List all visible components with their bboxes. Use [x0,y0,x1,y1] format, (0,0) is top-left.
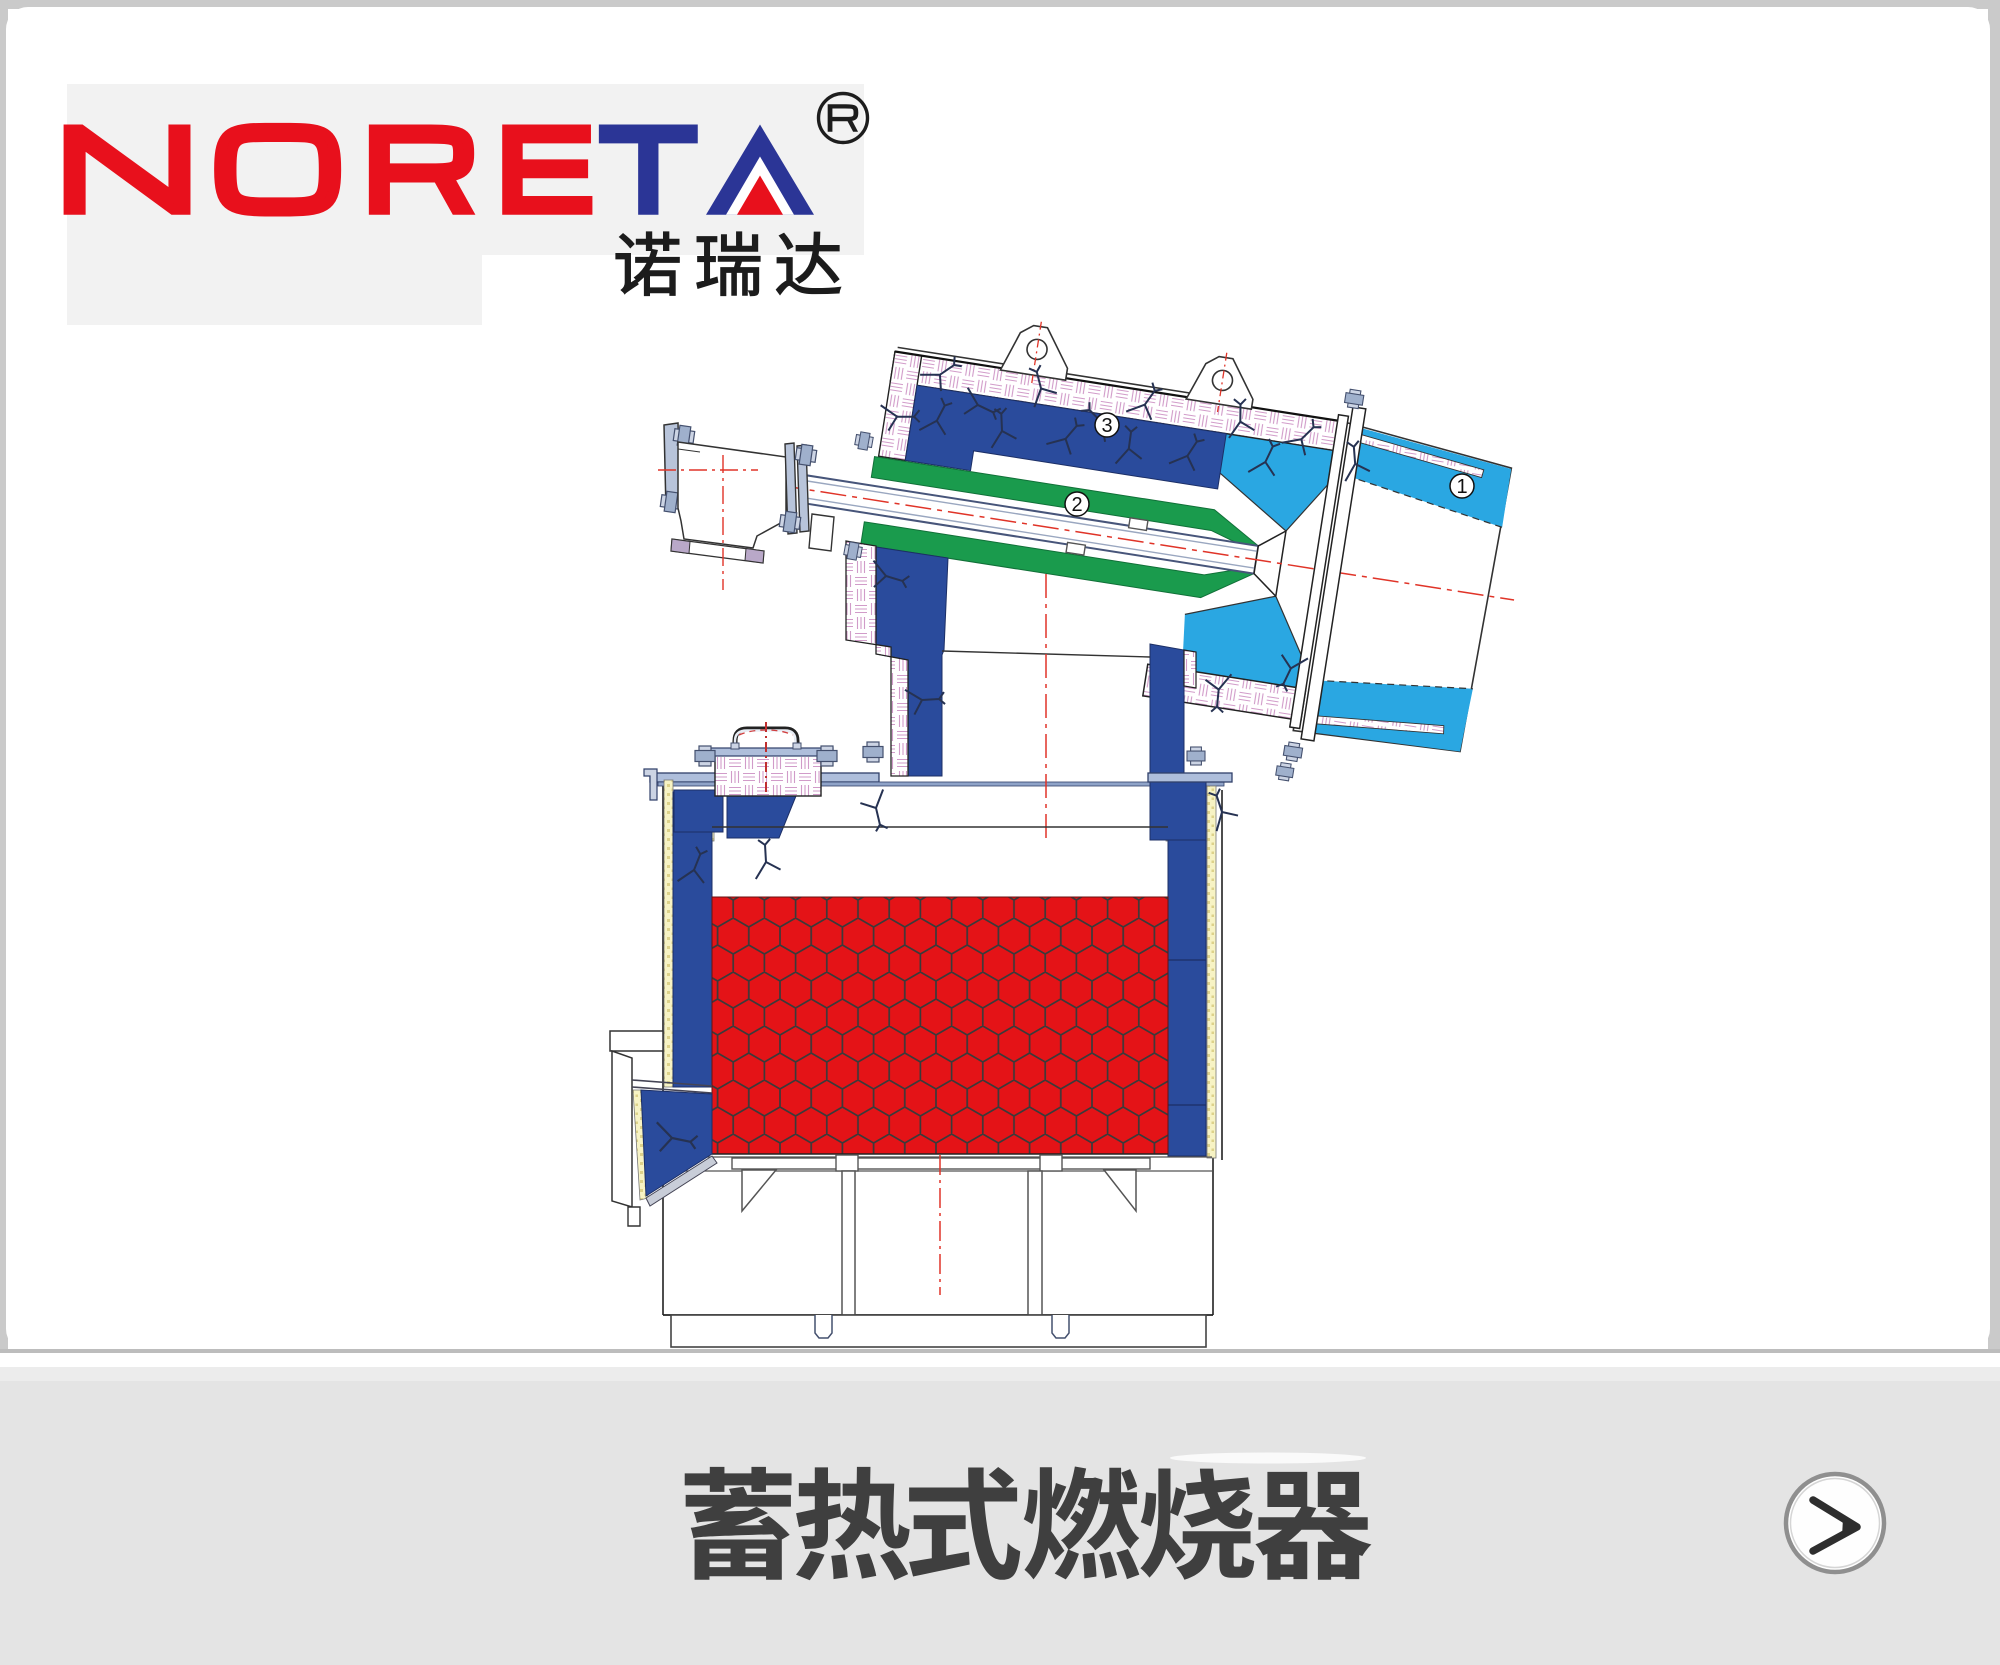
svg-text:2: 2 [1071,494,1082,516]
svg-text:1: 1 [1456,476,1467,498]
svg-text:3: 3 [1101,415,1112,437]
